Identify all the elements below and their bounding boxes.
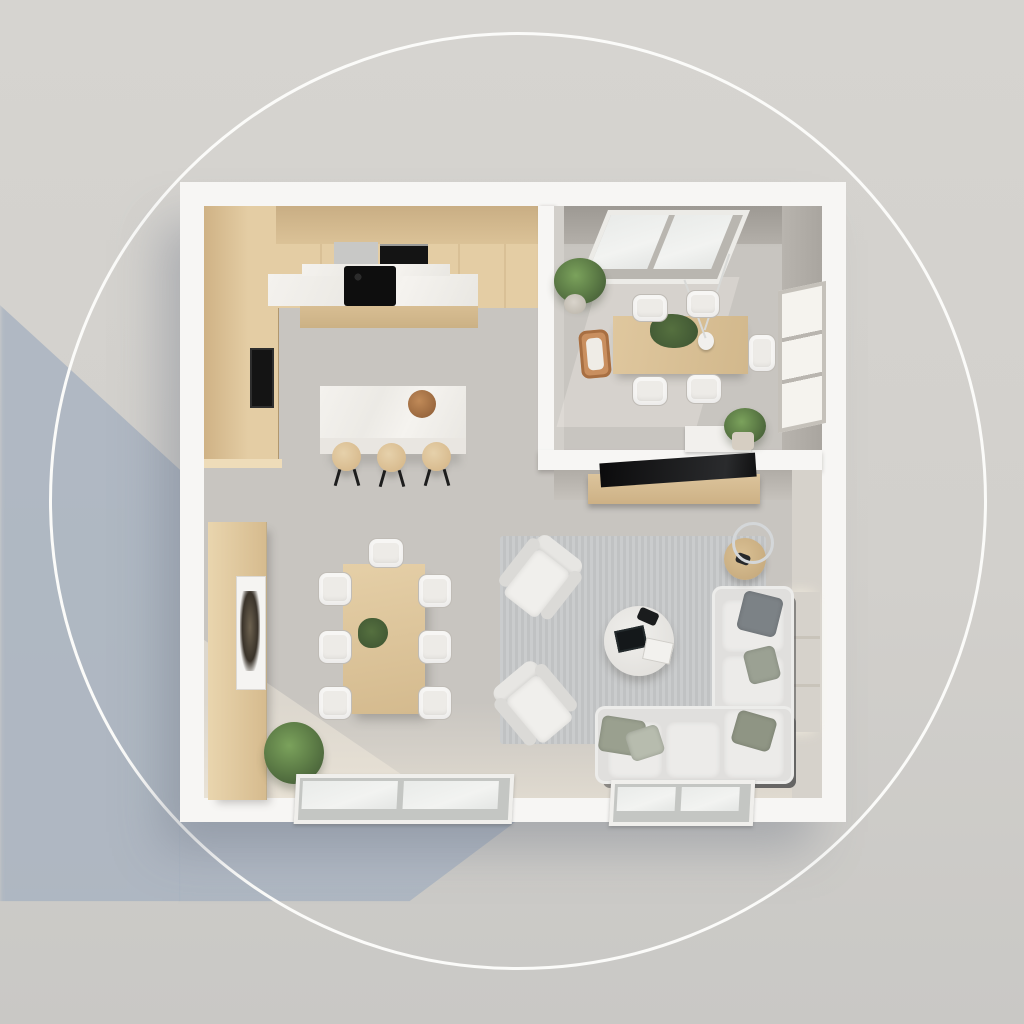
artwork-image — [240, 591, 260, 671]
floor-window-left — [294, 774, 515, 824]
framed-artwork — [236, 576, 266, 690]
hood-cabinet — [334, 242, 378, 266]
cooktop — [344, 266, 396, 306]
floor-window-right — [609, 780, 755, 826]
dining-area-chair — [418, 574, 452, 608]
upper-cabinets-top — [276, 206, 538, 246]
dining-area-chair — [418, 686, 452, 720]
bar-stool — [422, 442, 451, 471]
console-plant-pot — [732, 432, 754, 450]
dining-area-chair — [318, 630, 352, 664]
table-vase — [698, 332, 714, 350]
window-pane — [681, 787, 740, 811]
kitchen-island — [320, 386, 466, 440]
floor-lamp-ring — [732, 522, 774, 564]
dining-chair — [632, 294, 668, 322]
tall-built-in-appliance — [250, 348, 274, 408]
sofa-cushion — [666, 722, 720, 778]
scene — [0, 0, 1024, 1024]
dining-area-chair — [318, 686, 352, 720]
dining-chair — [632, 376, 668, 406]
window-pane — [402, 781, 498, 809]
wood-armchair-seat — [586, 337, 605, 370]
window-pane — [617, 787, 676, 811]
dining-area-chair — [368, 538, 404, 568]
dining-area-chair — [418, 630, 452, 664]
wall-dining-left — [538, 206, 554, 468]
dining-side-window — [778, 281, 826, 433]
dining-area-chair — [318, 572, 352, 606]
floorplan — [180, 182, 846, 822]
bar-stool — [377, 443, 406, 472]
wood-armchair — [578, 329, 612, 379]
dining-chair — [686, 290, 720, 318]
living-wall-window — [792, 592, 820, 732]
fruit-bowl — [408, 390, 436, 418]
plant-pot — [564, 294, 586, 314]
kitchen-base-cabinets — [300, 304, 478, 328]
kitchen-cabinet-end-face — [204, 459, 282, 468]
dining-chair — [686, 374, 722, 404]
kitchen-tall-cabinet-column — [204, 206, 279, 462]
bar-stool — [332, 442, 361, 471]
dining-chair — [748, 334, 776, 372]
window-pane — [301, 781, 397, 809]
